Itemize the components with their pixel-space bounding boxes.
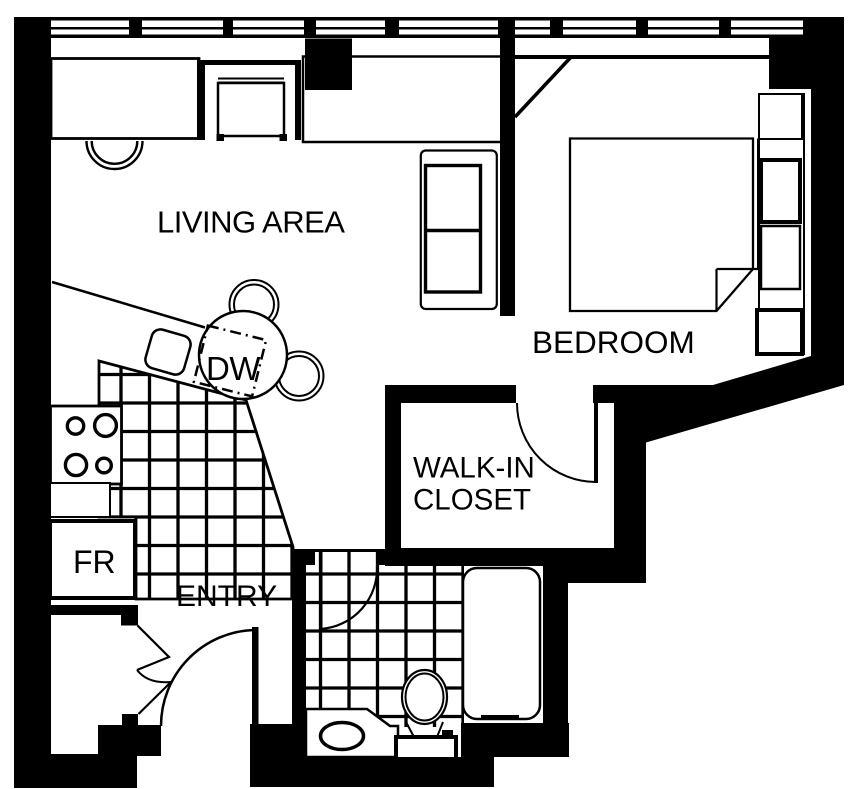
svg-text:BEDROOM: BEDROOM bbox=[532, 324, 695, 360]
svg-text:ENTRY: ENTRY bbox=[176, 580, 277, 613]
svg-text:FR: FR bbox=[73, 544, 116, 580]
svg-text:DW: DW bbox=[206, 350, 261, 387]
svg-text:LIVING AREA: LIVING AREA bbox=[157, 205, 345, 240]
svg-text:CLOSET: CLOSET bbox=[413, 484, 531, 517]
svg-text:WALK-IN: WALK-IN bbox=[413, 452, 535, 485]
